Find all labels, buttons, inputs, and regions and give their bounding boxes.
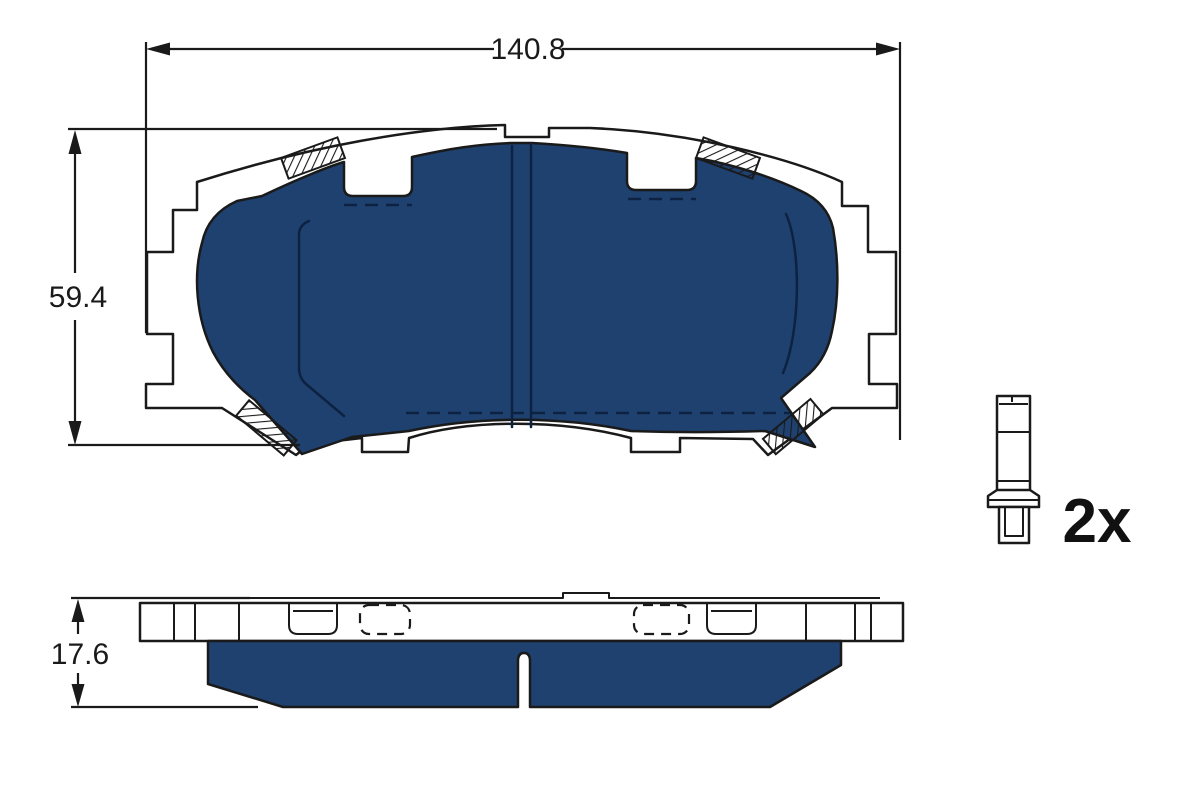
drawing-page: 140.8 59.4 17.6 2x (0, 0, 1200, 800)
accessory-quantity-label: 2x (1063, 487, 1132, 556)
dim-width-label: 140.8 (490, 33, 565, 66)
friction-material-front (197, 143, 837, 454)
backing-plate-side (140, 603, 903, 641)
pin-body (997, 396, 1030, 493)
backing-plate-top-edge (147, 593, 880, 598)
dim-height-label: 59.4 (49, 281, 107, 314)
technical-drawing-canvas: 140.8 59.4 17.6 2x (0, 0, 1200, 800)
pin-accessory (988, 396, 1039, 543)
friction-material-side (208, 641, 841, 707)
dim-width-arrow-left (146, 43, 170, 56)
pin-collar (988, 490, 1039, 507)
dim-thickness-arrow-top (72, 599, 85, 622)
front-view (146, 125, 897, 455)
dim-thickness-label: 17.6 (51, 638, 109, 671)
dim-height-arrow-top (69, 130, 82, 154)
pin-sleeve (999, 507, 1029, 543)
side-view (140, 593, 903, 707)
dim-height-arrow-bottom (69, 421, 82, 445)
dim-thickness-arrow-bottom (72, 684, 85, 707)
dim-width-arrow-right (876, 43, 900, 56)
